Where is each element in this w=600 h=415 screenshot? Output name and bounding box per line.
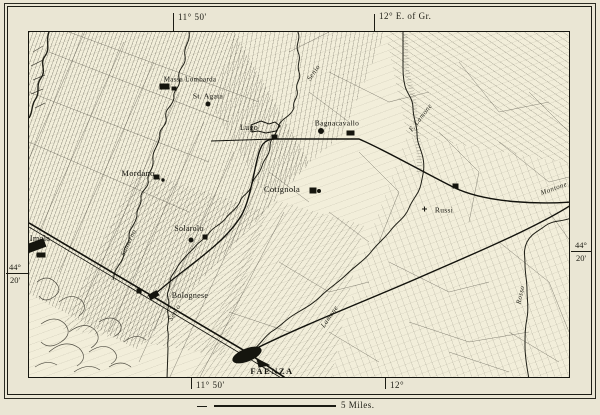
map-sheet: Massa Lombarda St. Agata Lugo Bagnacaval…	[0, 0, 600, 415]
rivers-group	[29, 32, 570, 378]
tick-bottom-left	[191, 378, 192, 389]
scale-bar-dash	[197, 406, 207, 407]
town-label-cotignola: Cotignola	[264, 185, 300, 194]
town-label-imola: Imola	[30, 235, 50, 243]
town-label-st-agata: St. Agata	[193, 92, 223, 100]
scale-bar	[214, 405, 336, 407]
town-label-russi: Russi	[435, 206, 453, 214]
map-canvas: Massa Lombarda St. Agata Lugo Bagnacaval…	[28, 31, 570, 378]
town-label-bolognese: Bolognese	[172, 292, 208, 300]
town-label-lugo: Lugo	[240, 124, 258, 132]
railways-group	[29, 139, 570, 378]
town-label-solarolo: Solarolo	[174, 225, 204, 233]
lat-rule-right	[571, 251, 592, 252]
town-label-mordano: Mordano	[121, 169, 154, 178]
lat-label-left-deg: 44°	[9, 263, 21, 272]
town-label-massa-lombarda: Massa Lombarda	[164, 77, 217, 84]
town-label-faenza: FAENZA	[250, 367, 293, 376]
tick-top-right	[374, 14, 375, 31]
scale-label: 5 Miles.	[341, 401, 375, 410]
map-linework	[29, 32, 570, 378]
lat-label-right-min: 20'	[576, 254, 586, 263]
lon-label-bottom-left: 11° 50'	[196, 381, 225, 390]
town-label-bagnacavallo: Bagnacavallo	[315, 119, 359, 127]
lon-label-bottom-right: 12°	[390, 381, 404, 390]
lat-label-right-deg: 44°	[575, 241, 587, 250]
lon-label-top-right: 12° E. of Gr.	[379, 12, 431, 21]
hill-hachures	[31, 46, 146, 372]
lat-label-left-min: 20'	[10, 276, 20, 285]
tick-bottom-right	[385, 378, 386, 389]
lat-rule-left	[6, 273, 28, 274]
lon-label-top-left: 11° 50'	[178, 13, 207, 22]
tick-top-left	[173, 13, 174, 31]
